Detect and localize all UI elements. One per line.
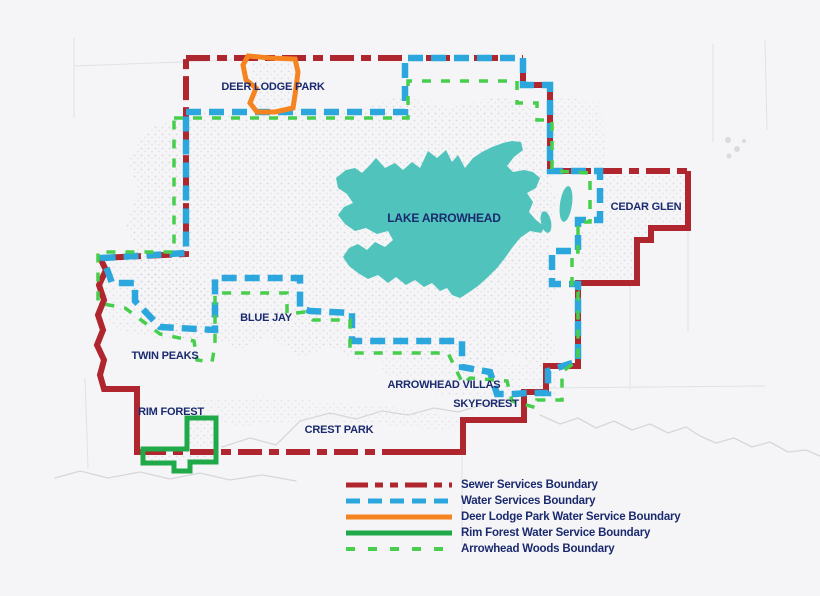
legend-label-sewer-services-boundary: Sewer Services Boundary (461, 479, 598, 491)
legend-label-rim-forest-water-service-boundary: Rim Forest Water Service Boundary (461, 527, 650, 539)
terrain-blob-0 (725, 137, 731, 143)
legend-label-deer-lodge-park-water-service-boundary: Deer Lodge Park Water Service Boundary (461, 511, 681, 523)
legend: Sewer Services BoundaryWater Services Bo… (346, 478, 681, 555)
terrain-blob-2 (727, 154, 732, 159)
legend-item-arrowhead-woods-boundary: Arrowhead Woods Boundary (346, 542, 681, 555)
map-label-skyforest: SKYFOREST (453, 398, 518, 410)
map-label-arrowhead-villas: ARROWHEAD VILLAS (388, 379, 501, 391)
lake-arrowhead-service-boundaries-map: DEER LODGE PARKLAKE ARROWHEADCEDAR GLENB… (0, 0, 820, 596)
map-label-twin-peaks: TWIN PEAKS (131, 350, 198, 362)
developed-area-texture-6 (548, 96, 606, 168)
parcel-line-6 (765, 40, 767, 130)
pond-1 (558, 185, 575, 222)
legend-label-arrowhead-woods-boundary: Arrowhead Woods Boundary (461, 543, 614, 555)
map-label-deer-lodge-park: DEER LODGE PARK (221, 81, 324, 93)
legend-item-sewer-services-boundary: Sewer Services Boundary (346, 478, 681, 491)
legend-swatch-deer-lodge-park-water-service-boundary (346, 513, 452, 521)
developed-area-texture-3 (188, 420, 215, 449)
parcel-line-8 (85, 378, 88, 468)
legend-swatch-water-services-boundary (346, 497, 452, 505)
legend-item-water-services-boundary: Water Services Boundary (346, 494, 681, 507)
map-label-rim-forest: RIM FOREST (138, 406, 204, 418)
legend-item-rim-forest-water-service-boundary: Rim Forest Water Service Boundary (346, 526, 681, 539)
map-label-blue-jay: BLUE JAY (240, 312, 292, 324)
legend-swatch-arrowhead-woods-boundary (346, 545, 452, 553)
map-label-lake-arrowhead: LAKE ARROWHEAD (387, 211, 500, 225)
parcel-line-4 (545, 386, 765, 388)
road-line-0 (540, 415, 820, 456)
map-label-crest-park: CREST PARK (305, 424, 374, 436)
terrain-blob-1 (734, 146, 740, 152)
legend-label-water-services-boundary: Water Services Boundary (461, 495, 595, 507)
terrain-blob-3 (742, 139, 746, 143)
legend-swatch-rim-forest-water-service-boundary (346, 529, 452, 537)
map-label-cedar-glen: CEDAR GLEN (611, 201, 682, 213)
legend-swatch-sewer-services-boundary (346, 481, 452, 489)
legend-item-deer-lodge-park-water-service-boundary: Deer Lodge Park Water Service Boundary (346, 510, 681, 523)
